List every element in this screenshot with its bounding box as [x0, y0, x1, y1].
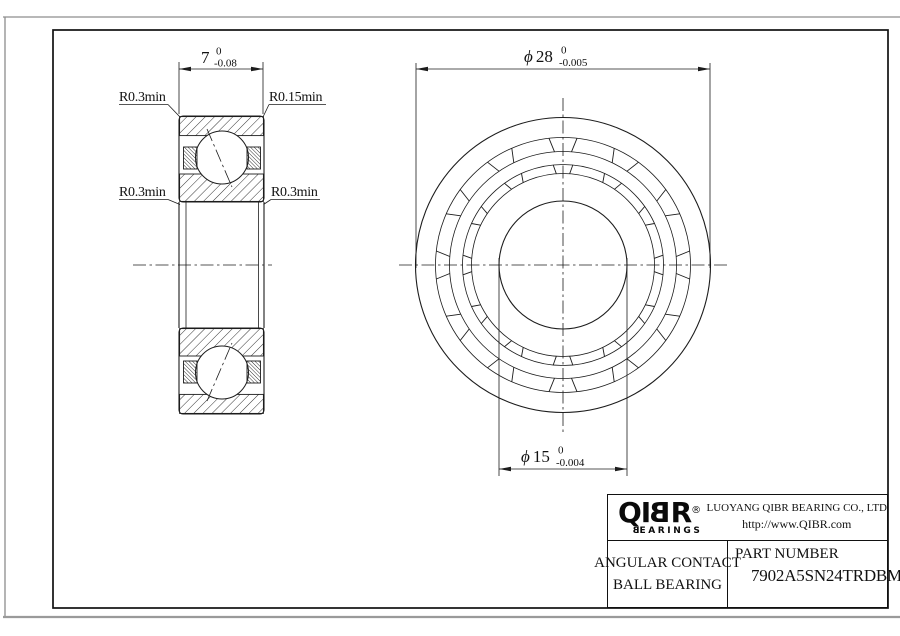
- upper-section: [179, 116, 264, 202]
- lower-section: [179, 328, 264, 414]
- registered-trademark-symbol: ®: [691, 505, 701, 516]
- radius-label-top-right: R0.15min: [269, 90, 323, 105]
- dim-od-text: ϕ28: [524, 47, 553, 66]
- product-name-cell: ANGULAR CONTACT BALL BEARING: [608, 541, 728, 608]
- title-block-header-row: QIBR® BEARINGS LUOYANG QIBR BEARING CO.,…: [608, 495, 887, 541]
- cage-right: [247, 147, 261, 169]
- dim-width-tol-lower: -0.08: [214, 58, 237, 70]
- front-view: ϕ28 0 -0.005 ϕ15 0 -0.004: [399, 45, 728, 477]
- logo-wordmark: QIBR®: [618, 498, 707, 526]
- part-number-value: 7902A5SN24TRDBMP4: [735, 566, 900, 586]
- dim-width-value: 7: [201, 48, 210, 67]
- radius-label-bottom-left: R0.3min: [119, 185, 166, 200]
- company-info: LUOYANG QIBR BEARING CO., LTD http://www…: [707, 495, 888, 540]
- dim-bore-tol-lower: -0.004: [556, 457, 585, 469]
- dim-bore-tol-upper: 0: [558, 445, 564, 457]
- ball: [196, 346, 249, 399]
- radius-callout-top-left: R0.3min: [119, 90, 180, 117]
- radius-callout-bottom-left: R0.3min: [119, 185, 180, 205]
- product-name-line1: ANGULAR CONTACT: [594, 555, 741, 572]
- dim-bore-text: ϕ15: [521, 447, 550, 466]
- radius-callout-bottom-right: R0.3min: [264, 185, 321, 205]
- ball: [196, 131, 249, 184]
- cage-left: [184, 361, 198, 383]
- title-block: QIBR® BEARINGS LUOYANG QIBR BEARING CO.,…: [607, 494, 888, 608]
- dim-width-tol-upper: 0: [216, 46, 222, 58]
- dim-od-tol-lower: -0.005: [559, 57, 588, 69]
- left-section-view: 7 0 -0.08 R0.3min R0.15min R0.3min R0.3m…: [119, 46, 326, 415]
- engineering-drawing-page: { "dimensions": { "width": { "value": "7…: [0, 0, 900, 636]
- radius-label-bottom-right: R0.3min: [271, 185, 318, 200]
- dim-od-tol-upper: 0: [561, 45, 567, 57]
- cage-left: [184, 147, 198, 169]
- radius-callout-top-right: R0.15min: [263, 90, 326, 117]
- company-website: http://www.QIBR.com: [742, 517, 851, 532]
- cage-right: [247, 361, 261, 383]
- title-block-detail-row: ANGULAR CONTACT BALL BEARING PART NUMBER…: [608, 541, 887, 608]
- product-name-line2: BALL BEARING: [613, 577, 722, 594]
- radius-label-top-left: R0.3min: [119, 90, 166, 105]
- part-number-cell: PART NUMBER 7902A5SN24TRDBMP4: [728, 541, 900, 608]
- company-logo: QIBR® BEARINGS: [608, 495, 707, 540]
- part-number-label: PART NUMBER: [735, 546, 900, 563]
- dim-width: 7 0 -0.08: [179, 46, 263, 115]
- company-name: LUOYANG QIBR BEARING CO., LTD: [707, 502, 888, 514]
